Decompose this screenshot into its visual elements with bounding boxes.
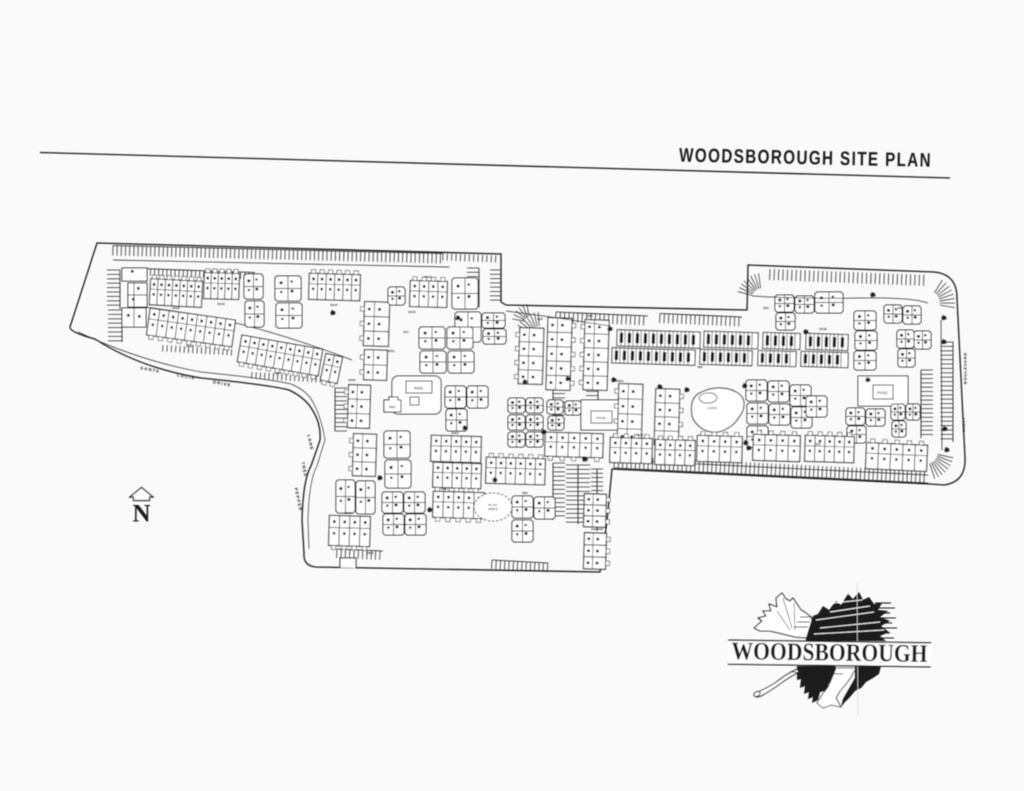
svg-text:POOL: POOL	[878, 391, 889, 395]
svg-text:3031: 3031	[387, 349, 395, 353]
svg-text:3061: 3061	[616, 379, 624, 383]
svg-text:3035: 3035	[348, 378, 356, 382]
svg-text:WOODSBOROUGH: WOODSBOROUGH	[731, 638, 928, 668]
svg-text:POOL: POOL	[596, 416, 606, 420]
svg-text:3051: 3051	[636, 433, 644, 437]
svg-text:3065: 3065	[366, 551, 374, 555]
svg-text:AREA: AREA	[488, 507, 499, 511]
svg-text:562: 562	[522, 491, 528, 495]
svg-text:3039: 3039	[172, 306, 180, 310]
svg-text:3033: 3033	[424, 275, 432, 279]
svg-text:360: 360	[697, 365, 703, 369]
svg-text:2068: 2068	[344, 511, 352, 515]
svg-text:KIELY: KIELY	[961, 416, 966, 431]
svg-text:POOL: POOL	[414, 387, 424, 391]
svg-text:3049: 3049	[819, 327, 827, 331]
svg-text:3061: 3061	[441, 487, 449, 491]
svg-text:BOULEVARD: BOULEVARD	[963, 352, 968, 384]
svg-text:368: 368	[815, 442, 821, 446]
svg-text:LAKE: LAKE	[707, 406, 717, 410]
svg-text:REC: REC	[389, 405, 396, 409]
svg-text:3043: 3043	[408, 310, 416, 314]
svg-text:363: 363	[763, 306, 769, 310]
svg-text:3047: 3047	[330, 303, 338, 307]
svg-text:3063: 3063	[451, 431, 459, 435]
svg-text:328: 328	[587, 314, 593, 318]
svg-text:371: 371	[403, 330, 409, 334]
svg-text:366: 366	[897, 306, 903, 310]
svg-text:3036: 3036	[274, 371, 282, 375]
svg-text:3038: 3038	[186, 344, 194, 348]
svg-text:318: 318	[537, 317, 543, 321]
svg-text:3043: 3043	[217, 302, 225, 306]
svg-text:N: N	[132, 501, 150, 528]
